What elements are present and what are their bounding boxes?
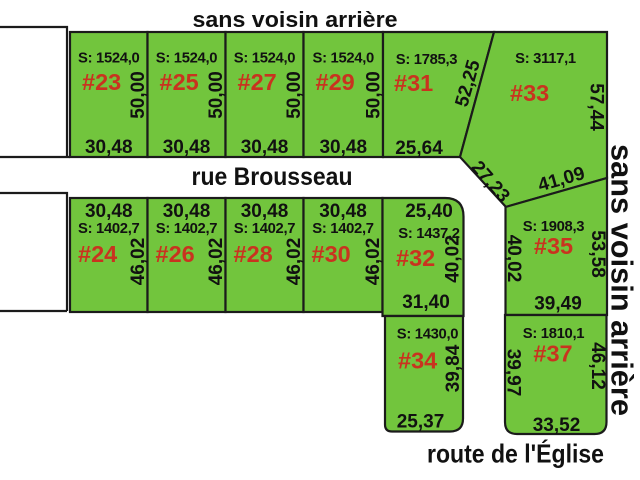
- svg-text:30,48: 30,48: [241, 137, 289, 158]
- svg-text:46,02: 46,02: [363, 238, 384, 286]
- svg-text:S: 1524,0: S: 1524,0: [234, 51, 296, 67]
- svg-text:#28: #28: [234, 241, 273, 267]
- svg-text:#34: #34: [398, 348, 437, 374]
- svg-text:40,02: 40,02: [503, 235, 524, 283]
- svg-text:S: 1402,7: S: 1402,7: [234, 221, 296, 237]
- svg-text:40,02: 40,02: [443, 235, 464, 283]
- svg-text:30,48: 30,48: [85, 201, 133, 222]
- svg-text:30,48: 30,48: [319, 201, 367, 222]
- svg-text:#32: #32: [396, 245, 435, 271]
- svg-text:#23: #23: [82, 69, 121, 95]
- svg-text:#30: #30: [312, 241, 351, 267]
- svg-text:30,48: 30,48: [163, 201, 211, 222]
- svg-text:46,02: 46,02: [128, 238, 149, 286]
- svg-text:S: 1785,3: S: 1785,3: [396, 52, 458, 68]
- svg-text:S: 1524,0: S: 1524,0: [78, 51, 140, 67]
- svg-text:#31: #31: [394, 70, 433, 96]
- svg-text:30,48: 30,48: [319, 137, 367, 158]
- svg-text:sans voisin arrière: sans voisin arrière: [193, 7, 398, 32]
- svg-text:#29: #29: [316, 69, 355, 95]
- svg-text:S: 1402,7: S: 1402,7: [78, 221, 140, 237]
- svg-text:S: 1524,0: S: 1524,0: [313, 51, 375, 67]
- svg-text:rue Brousseau: rue Brousseau: [192, 163, 353, 191]
- svg-text:39,84: 39,84: [443, 344, 464, 392]
- svg-text:46,02: 46,02: [284, 238, 305, 286]
- svg-text:S: 1524,0: S: 1524,0: [156, 51, 218, 67]
- svg-text:#26: #26: [156, 241, 195, 267]
- svg-text:30,48: 30,48: [163, 137, 211, 158]
- svg-text:50,00: 50,00: [364, 71, 385, 119]
- svg-text:S: 3117,1: S: 3117,1: [515, 51, 576, 67]
- svg-text:#35: #35: [534, 233, 573, 259]
- svg-text:50,00: 50,00: [284, 71, 305, 119]
- svg-text:S: 1430,0: S: 1430,0: [397, 327, 459, 343]
- svg-text:#25: #25: [160, 69, 199, 95]
- svg-text:46,02: 46,02: [206, 238, 227, 286]
- svg-text:#37: #37: [533, 341, 572, 367]
- svg-text:sans voisin arrière: sans voisin arrière: [605, 144, 640, 416]
- svg-text:39,49: 39,49: [534, 294, 582, 315]
- svg-text:S: 1402,7: S: 1402,7: [312, 221, 374, 237]
- svg-text:25,40: 25,40: [405, 201, 453, 222]
- svg-text:33,52: 33,52: [533, 415, 581, 436]
- svg-text:25,64: 25,64: [395, 138, 443, 159]
- svg-text:39,97: 39,97: [503, 349, 524, 397]
- svg-text:S: 1402,7: S: 1402,7: [156, 221, 218, 237]
- svg-text:50,00: 50,00: [128, 71, 149, 119]
- svg-text:25,37: 25,37: [397, 412, 445, 433]
- svg-text:30,48: 30,48: [241, 201, 289, 222]
- svg-text:57,44: 57,44: [586, 83, 607, 131]
- svg-text:30,48: 30,48: [85, 137, 133, 158]
- svg-text:#33: #33: [510, 80, 549, 106]
- svg-text:route de l'Église: route de l'Église: [427, 439, 604, 469]
- svg-text:#24: #24: [78, 241, 117, 267]
- svg-text:50,00: 50,00: [206, 71, 227, 119]
- svg-text:31,40: 31,40: [402, 292, 450, 313]
- svg-text:#27: #27: [238, 69, 277, 95]
